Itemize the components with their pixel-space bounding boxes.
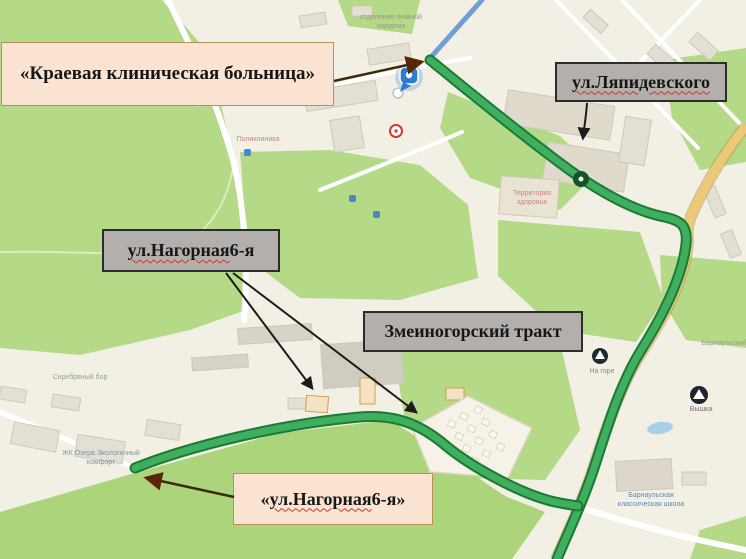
map-label-serebryany-bor: Серебряный бор <box>30 374 130 383</box>
transit-poi-icon <box>373 211 380 218</box>
construction-road <box>431 0 482 57</box>
building <box>360 378 375 404</box>
building <box>330 116 365 152</box>
building <box>51 394 81 411</box>
callout-nagornaya-quoted-main: ул.Нагорная <box>270 489 372 510</box>
pond <box>646 420 673 436</box>
map-label-polyclinic: Поликлиника <box>228 136 288 145</box>
building <box>10 422 59 452</box>
callout-nagornaya-quoted: «ул.Нагорная 6-я» <box>233 473 433 525</box>
callout-nagornaya-quoted-open: « <box>261 489 270 510</box>
map-label-na-gore: На горе <box>585 368 619 377</box>
callout-lyapidevskogo-text: ул.Ляпидевского <box>572 72 710 93</box>
building <box>446 388 464 400</box>
building <box>367 43 411 65</box>
map-label-zhk-ozera: ЖК Озера Экологичный комфорт <box>62 450 140 468</box>
annotated-map-screenshot: отделение гнойной хирургии Поликлиника Т… <box>0 0 746 559</box>
map-label-school: Барнаульская классическая школа <box>606 492 696 510</box>
map-label-vyshka: Вышка <box>684 406 718 415</box>
callout-hospital: «Краевая клиническая больница» <box>1 42 334 106</box>
map-label-health-center: Территория здоровья <box>502 190 562 208</box>
callout-zmeinogorskiy-text: Змеиногорский тракт <box>384 321 561 342</box>
callout-lyapidevskogo: ул.Ляпидевского <box>555 62 727 102</box>
callout-nagornaya-suffix: 6-я <box>230 240 255 261</box>
building <box>0 386 27 403</box>
building <box>145 419 181 440</box>
callout-nagornaya-quoted-suffix: 6-я» <box>372 489 406 510</box>
pin-dot <box>406 72 412 78</box>
building <box>682 472 706 485</box>
shop-glyph <box>395 130 398 133</box>
callout-hospital-text: «Краевая клиническая больница» <box>20 63 315 85</box>
map-label-surgery-dept: отделение гнойной хирургии <box>356 14 426 32</box>
callout-nagornaya-main: ул.Нагорная <box>128 240 230 261</box>
route-stop-icon-dot <box>579 177 584 182</box>
hospital-marker <box>393 63 423 98</box>
building <box>238 323 313 344</box>
transit-poi-icon <box>349 195 356 202</box>
building <box>305 395 328 412</box>
callout-zmeinogorskiy: Змеиногорский тракт <box>363 311 583 352</box>
map-label-barnaulsky: Барнаульский <box>698 340 746 349</box>
building <box>721 230 742 259</box>
callout-nagornaya: ул.Нагорная 6-я <box>102 229 280 272</box>
building <box>299 12 327 28</box>
transit-poi-icon <box>244 149 251 156</box>
building <box>619 116 652 166</box>
building <box>192 354 249 371</box>
building <box>615 459 672 492</box>
